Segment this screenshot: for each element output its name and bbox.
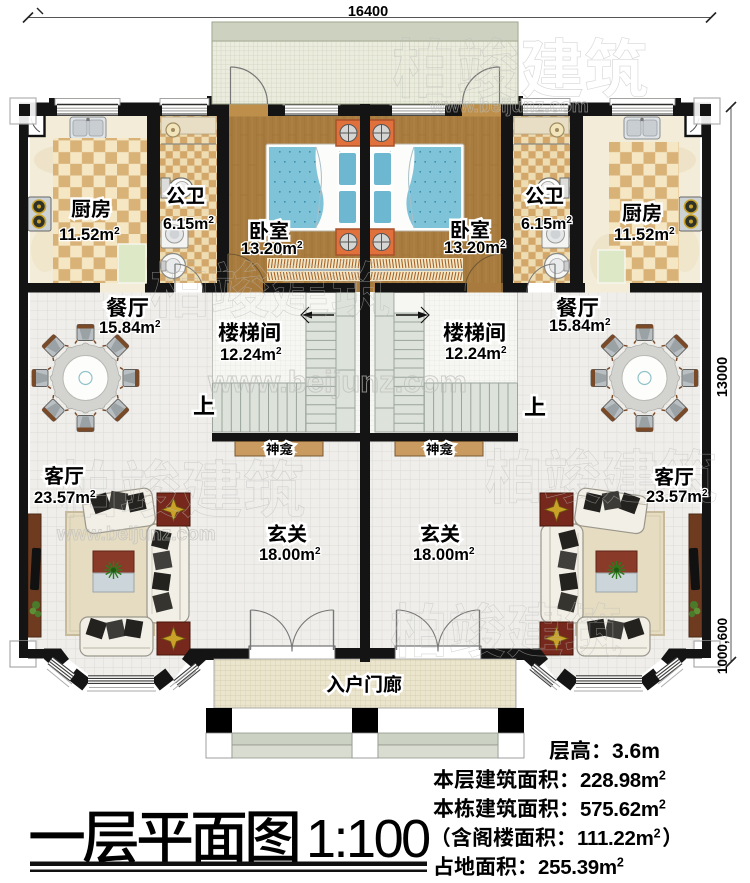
svg-text:12.24m2: 12.24m2 [220, 346, 282, 364]
svg-text:www.beijunz.com: www.beijunz.com [56, 524, 216, 545]
svg-text:15.84m2: 15.84m2 [549, 317, 611, 335]
svg-text:6.15m2: 6.15m2 [163, 215, 214, 233]
svg-text:11.52m2: 11.52m2 [614, 226, 675, 244]
svg-text:255.39m2: 255.39m2 [538, 856, 624, 880]
svg-text:13.20m2: 13.20m2 [241, 240, 303, 258]
svg-text:www.beijunz.com: www.beijunz.com [207, 364, 467, 399]
svg-text:11.52m2: 11.52m2 [59, 226, 120, 244]
svg-text:111.22m2: 111.22m2 [577, 827, 661, 851]
svg-text:1:100: 1:100 [306, 809, 429, 869]
svg-text:575.62m2: 575.62m2 [580, 798, 666, 822]
svg-text:23.57m2: 23.57m2 [646, 488, 708, 506]
svg-text:23.57m2: 23.57m2 [34, 489, 96, 507]
svg-text:www.beijunz.com: www.beijunz.com [429, 96, 589, 117]
svg-text:13000: 13000 [715, 357, 731, 397]
svg-text:18.00m2: 18.00m2 [259, 546, 321, 564]
svg-text:228.98m2: 228.98m2 [580, 769, 666, 793]
svg-text:6.15m2: 6.15m2 [521, 215, 572, 233]
svg-text:16400: 16400 [348, 4, 388, 20]
svg-text:12.24m2: 12.24m2 [445, 345, 507, 363]
svg-text:13.20m2: 13.20m2 [444, 239, 506, 257]
svg-text:3.6m: 3.6m [612, 740, 660, 763]
svg-text:18.00m2: 18.00m2 [413, 546, 475, 564]
svg-text:1000,600: 1000,600 [715, 618, 730, 674]
svg-text:15.84m2: 15.84m2 [99, 319, 161, 337]
